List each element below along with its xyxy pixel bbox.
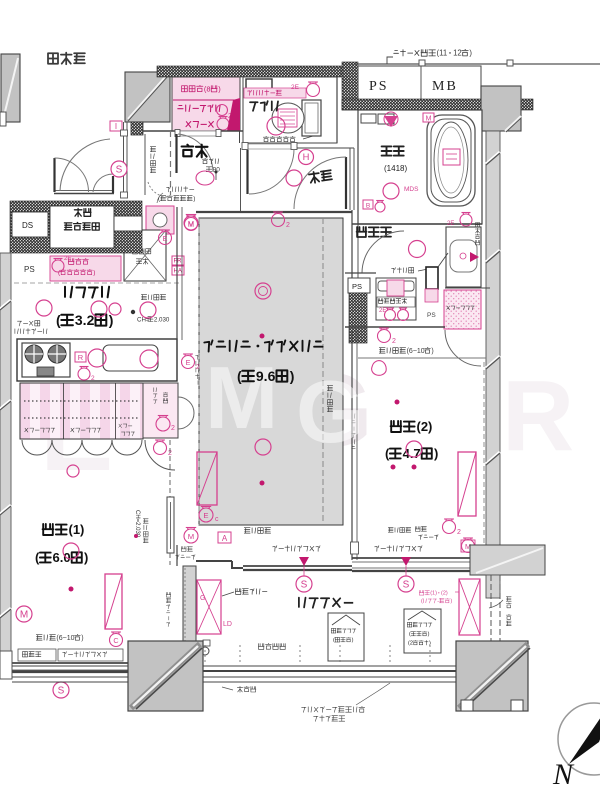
svg-text:(1418): (1418) (384, 164, 407, 173)
svg-text:S: S (403, 579, 410, 590)
svg-text:): ) (193, 196, 195, 203)
svg-text:(: ( (409, 632, 411, 638)
svg-text:E: E (203, 511, 208, 520)
svg-text:MDS: MDS (404, 186, 419, 193)
svg-text:M: M (20, 609, 28, 620)
svg-text:LD: LD (223, 621, 232, 628)
svg-text:E: E (186, 358, 191, 367)
svg-text:(2): (2) (441, 591, 448, 597)
svg-text:HA: HA (174, 269, 182, 275)
svg-text:): ) (431, 348, 433, 355)
svg-text:(: ( (333, 638, 335, 644)
svg-text:): ) (290, 368, 295, 384)
svg-text:N: N (552, 758, 575, 791)
svg-text:H: H (303, 151, 310, 162)
svg-text:MB: MB (432, 79, 458, 94)
svg-text:2E: 2E (447, 221, 454, 227)
svg-text:(1): (1) (430, 591, 437, 597)
svg-text:PS: PS (427, 312, 436, 319)
svg-text:2: 2 (286, 222, 290, 229)
svg-text:(8: (8 (204, 84, 211, 93)
svg-text:): ) (428, 632, 430, 638)
svg-text:R: R (78, 353, 84, 362)
svg-text:): ) (450, 599, 452, 605)
svg-text:(: ( (56, 312, 61, 328)
svg-text:S: S (58, 685, 65, 696)
svg-text:FR: FR (174, 259, 183, 265)
svg-text:): ) (93, 270, 95, 277)
svg-text:): ) (352, 638, 354, 644)
svg-text:): ) (469, 49, 472, 58)
svg-text:(: ( (421, 599, 423, 605)
svg-text:M: M (205, 348, 278, 447)
svg-text:2E: 2E (291, 84, 300, 91)
svg-text:PS: PS (369, 79, 389, 94)
svg-text:): ) (434, 446, 438, 461)
svg-text:9.6: 9.6 (256, 368, 276, 384)
svg-text:3.2: 3.2 (75, 312, 95, 328)
svg-text:PS: PS (352, 282, 362, 291)
svg-text:2.030: 2.030 (154, 316, 170, 323)
svg-text:A: A (222, 534, 228, 543)
svg-text:M: M (426, 115, 432, 122)
svg-text:): ) (81, 635, 83, 642)
svg-text:(1): (1) (69, 522, 85, 537)
svg-text:(: ( (237, 368, 242, 384)
svg-text:PS: PS (24, 265, 35, 274)
svg-text:(6~10: (6~10 (56, 635, 74, 642)
svg-text:DS: DS (22, 221, 33, 230)
svg-text:2: 2 (196, 364, 200, 371)
svg-text:2: 2 (171, 425, 175, 432)
svg-text:(6~10: (6~10 (407, 348, 425, 355)
svg-text:(2): (2) (417, 419, 433, 434)
svg-text:12: 12 (453, 49, 462, 58)
svg-text:C: C (113, 636, 118, 645)
svg-text:I: I (115, 122, 117, 131)
svg-text:(11: (11 (437, 49, 448, 58)
svg-text:B: B (366, 202, 370, 209)
svg-text:R: R (502, 360, 574, 472)
svg-text:G: G (200, 595, 205, 602)
svg-text:S: S (301, 579, 308, 590)
svg-text:M: M (188, 532, 194, 541)
svg-text:E: E (163, 234, 168, 243)
svg-text:c: c (215, 516, 219, 523)
svg-text:CH=: CH= (137, 316, 150, 323)
svg-text:(2: (2 (408, 641, 413, 647)
svg-text:2: 2 (457, 529, 461, 536)
svg-text:2: 2 (91, 375, 95, 382)
svg-text:6.0: 6.0 (53, 550, 71, 565)
svg-text:2: 2 (392, 338, 396, 345)
svg-text:-: - (437, 599, 439, 605)
svg-text:): ) (84, 550, 88, 565)
svg-text:4.7: 4.7 (403, 446, 421, 461)
svg-text:M: M (188, 219, 194, 228)
svg-text:2E: 2E (64, 256, 71, 262)
svg-text:S: S (116, 164, 123, 175)
svg-text:CH=2.030: CH=2.030 (134, 510, 140, 538)
